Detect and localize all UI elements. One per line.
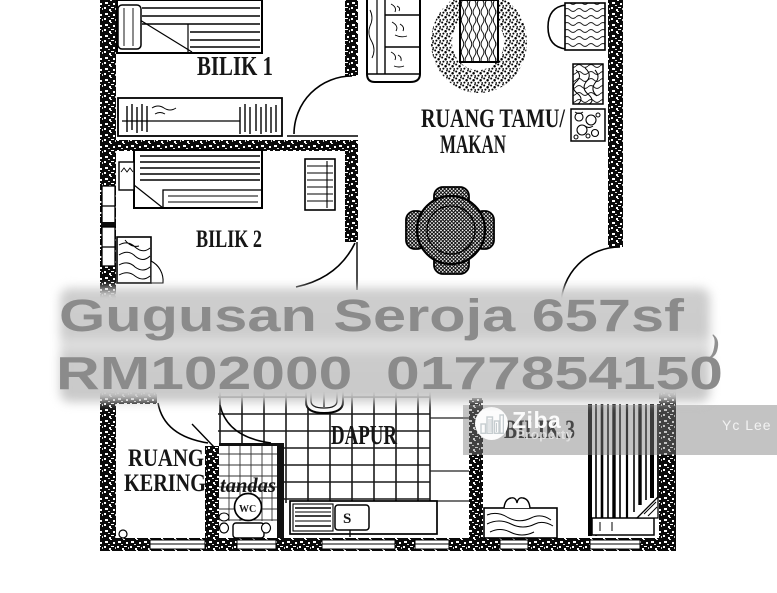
- svg-text:BILIK 2: BILIK 2: [196, 226, 262, 253]
- svg-text:BILIK 1: BILIK 1: [197, 51, 273, 81]
- svg-text:RUANG: RUANG: [128, 445, 204, 472]
- svg-text:WC: WC: [239, 504, 256, 515]
- svg-text:tandas: tandas: [220, 473, 276, 497]
- svg-text:MAKAN: MAKAN: [440, 130, 506, 159]
- svg-text:RUANG TAMU/: RUANG TAMU/: [421, 104, 566, 133]
- svg-text:S: S: [343, 511, 351, 527]
- svg-text:DAPUR: DAPUR: [331, 420, 397, 450]
- svg-text:KERING: KERING: [124, 470, 206, 497]
